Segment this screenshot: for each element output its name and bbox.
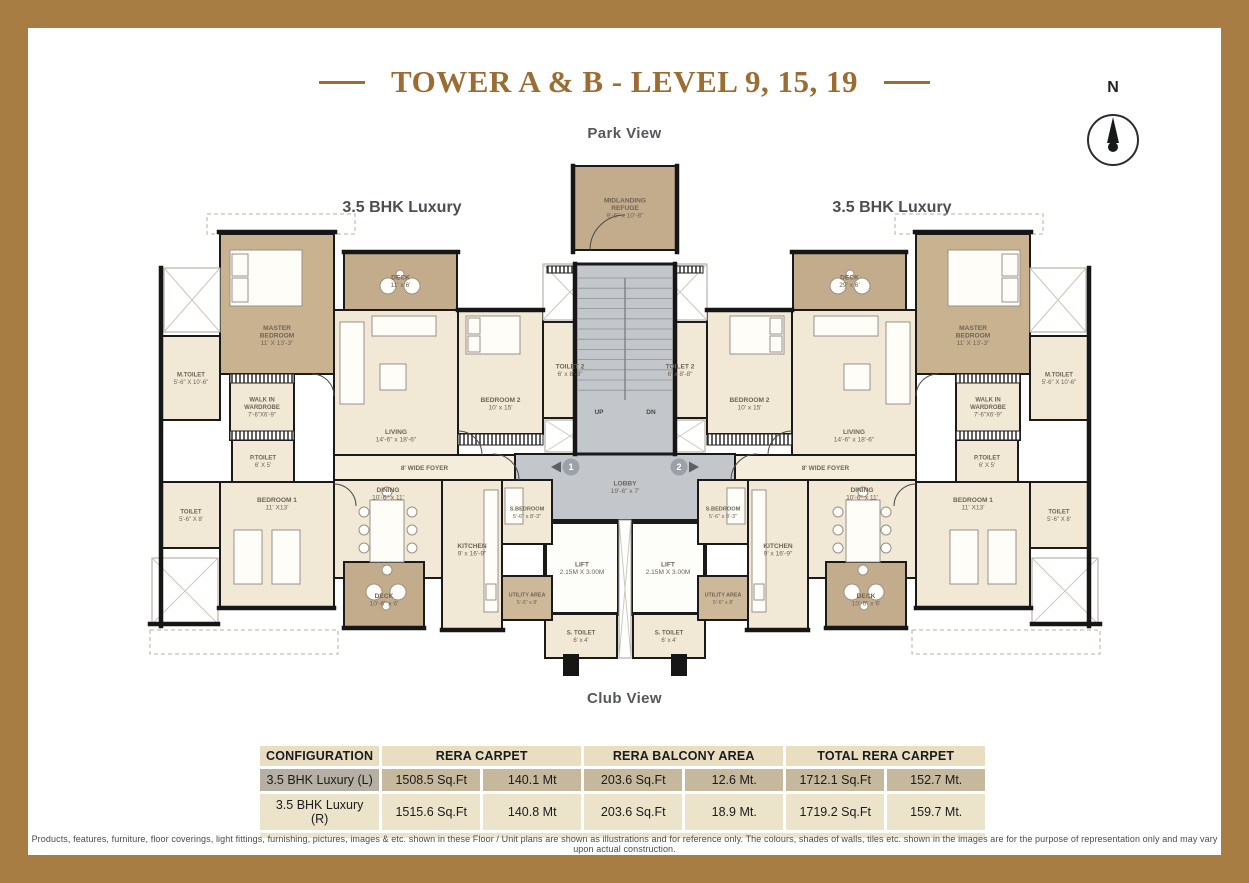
svg-text:WALK INWARDROBE7'-6"X6'-9": WALK INWARDROBE7'-6"X6'-9": [970, 397, 1006, 418]
svg-text:TOILET5'-6" X 8': TOILET5'-6" X 8': [179, 509, 203, 523]
stair-dn-label: DN: [646, 409, 656, 416]
park-view-label: Park View: [28, 125, 1221, 142]
table-cell: 140.8 Mt: [483, 794, 581, 830]
table-header: TOTAL RERA CARPET: [786, 746, 985, 766]
svg-text:8' WIDE FOYER: 8' WIDE FOYER: [802, 465, 850, 472]
table-cell: 1508.5 Sq.Ft: [382, 769, 480, 791]
page-title-row: TOWER A & B - LEVEL 9, 15, 19: [28, 64, 1221, 100]
table-row: 3.5 BHK Luxury (L)1508.5 Sq.Ft140.1 Mt20…: [260, 769, 985, 791]
table-cell: 203.6 Sq.Ft: [584, 769, 682, 791]
table-cell: 1515.6 Sq.Ft: [382, 794, 480, 830]
table-row: 3.5 BHK Luxury (R)1515.6 Sq.Ft140.8 Mt20…: [260, 794, 985, 830]
svg-text:M.TOILET5'-6" X 10'-6": M.TOILET5'-6" X 10'-6": [1042, 372, 1077, 386]
table-cell: 1712.1 Sq.Ft: [786, 769, 884, 791]
title-dash-left: [319, 81, 365, 84]
table-cell: 3.5 BHK Luxury (R): [260, 794, 379, 830]
page-title: TOWER A & B - LEVEL 9, 15, 19: [391, 64, 858, 100]
rera-table-wrap: CONFIGURATIONRERA CARPETRERA BALCONY ARE…: [257, 743, 988, 838]
svg-text:MASTERBEDROOM11' X 13'-3": MASTERBEDROOM11' X 13'-3": [956, 325, 991, 347]
table-cell: 203.6 Sq.Ft: [584, 794, 682, 830]
svg-text:8' WIDE FOYER: 8' WIDE FOYER: [401, 465, 449, 472]
stair-up-label: UP: [594, 409, 604, 416]
svg-text:TOILET5'-6" X 8': TOILET5'-6" X 8': [1047, 509, 1071, 523]
table-cell: 159.7 Mt.: [887, 794, 985, 830]
svg-text:WALK INWARDROBE7'-6"X6'-9": WALK INWARDROBE7'-6"X6'-9": [244, 397, 280, 418]
svg-text:S.BEDROOM5'-6" x 8'-3": S.BEDROOM5'-6" x 8'-3": [510, 506, 545, 520]
table-header: CONFIGURATION: [260, 746, 379, 766]
table-cell: 1719.2 Sq.Ft: [786, 794, 884, 830]
table-cell: 3.5 BHK Luxury (L): [260, 769, 379, 791]
svg-text:DINING10'-6" x 11': DINING10'-6" x 11': [846, 487, 878, 502]
table-cell: 152.7 Mt.: [887, 769, 985, 791]
title-dash-right: [884, 81, 930, 84]
svg-text:M.TOILET5'-6" X 10'-6": M.TOILET5'-6" X 10'-6": [174, 372, 209, 386]
svg-text:LOBBY19'-6" x 7': LOBBY19'-6" x 7': [611, 480, 640, 495]
club-view-label: Club View: [28, 690, 1221, 707]
svg-text:DINING10'-6" x 11': DINING10'-6" x 11': [372, 487, 404, 502]
svg-text:MASTERBEDROOM11' X 13'-3": MASTERBEDROOM11' X 13'-3": [260, 325, 295, 347]
brochure-page: TOWER A & B - LEVEL 9, 15, 19 Park View …: [0, 0, 1249, 883]
table-cell: 18.9 Mt.: [685, 794, 783, 830]
svg-text:S.BEDROOM5'-6" x 8'-3": S.BEDROOM5'-6" x 8'-3": [706, 506, 741, 520]
svg-text:DECK29' x 6': DECK29' x 6': [839, 274, 859, 289]
table-cell: 140.1 Mt: [483, 769, 581, 791]
table-header-row: CONFIGURATIONRERA CARPETRERA BALCONY ARE…: [260, 746, 985, 766]
svg-text:DECK11' x 6': DECK11' x 6': [391, 274, 411, 289]
svg-text:KITCHEN9' x 16'-9": KITCHEN9' x 16'-9": [457, 543, 487, 558]
disclaimer-text: Products, features, furniture, floor cov…: [28, 834, 1221, 854]
staircase: [575, 264, 675, 454]
floor-plan: UP DN 1 2MIDLANDINGREFUGE9'-6" x 10'-8"L…: [122, 162, 1128, 678]
table-header: RERA CARPET: [382, 746, 581, 766]
rera-table: CONFIGURATIONRERA CARPETRERA BALCONY ARE…: [257, 743, 988, 833]
svg-text:2: 2: [676, 462, 681, 472]
compass-north-letter: N: [1107, 79, 1119, 96]
svg-text:1: 1: [568, 462, 573, 472]
table-header: RERA BALCONY AREA: [584, 746, 783, 766]
table-cell: 12.6 Mt.: [685, 769, 783, 791]
svg-text:TOILET 26' x 8'-8": TOILET 26' x 8'-8": [666, 363, 695, 378]
svg-text:KITCHEN9' x 16'-9": KITCHEN9' x 16'-9": [763, 543, 793, 558]
svg-text:TOILET 26' x 8'-8": TOILET 26' x 8'-8": [556, 363, 585, 378]
